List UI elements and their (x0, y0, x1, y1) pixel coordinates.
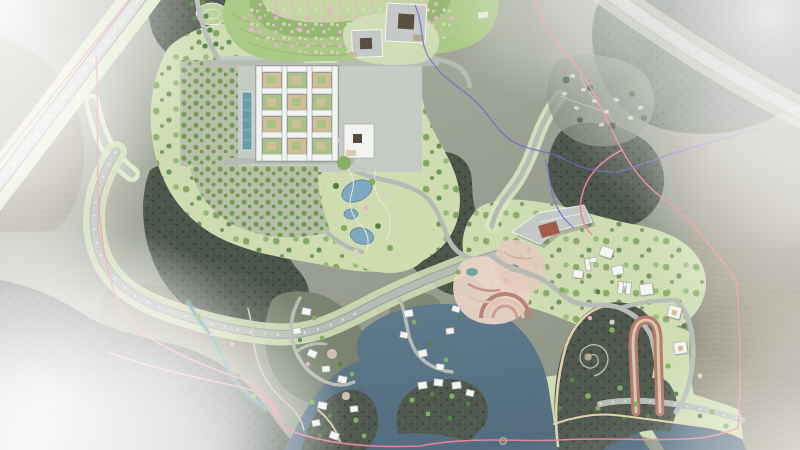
site-plan-rendering: H (0, 0, 800, 450)
fog-vignette (0, 0, 800, 450)
masterplan-canvas: H (0, 0, 800, 450)
edge-veil (0, 0, 800, 450)
